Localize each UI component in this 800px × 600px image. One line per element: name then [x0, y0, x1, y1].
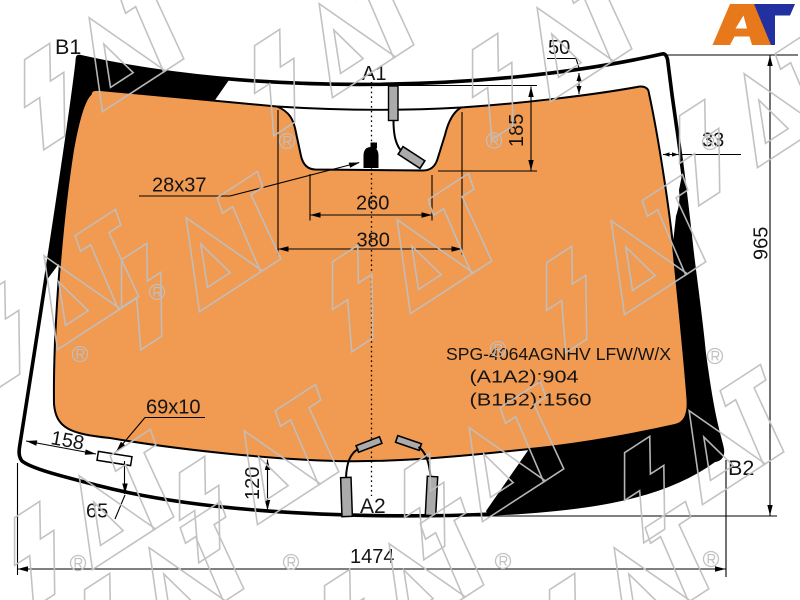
svg-text:A1: A1 [362, 63, 386, 85]
svg-text:185: 185 [506, 114, 528, 147]
svg-text:SPG-4064AGNHV LFW/W/X: SPG-4064AGNHV LFW/W/X [446, 344, 671, 364]
svg-text:A2: A2 [360, 495, 386, 518]
svg-text:B2: B2 [728, 456, 754, 480]
svg-text:965: 965 [751, 227, 773, 260]
svg-text:28x37: 28x37 [152, 175, 207, 197]
svg-text:B1: B1 [55, 35, 81, 59]
svg-text:(B1B2):1560: (B1B2):1560 [470, 390, 592, 410]
svg-text:380: 380 [357, 230, 390, 252]
svg-text:260: 260 [356, 193, 389, 215]
svg-text:(A1A2):904: (A1A2):904 [470, 367, 579, 387]
svg-text:1474: 1474 [350, 546, 395, 568]
svg-text:69x10: 69x10 [146, 397, 201, 419]
